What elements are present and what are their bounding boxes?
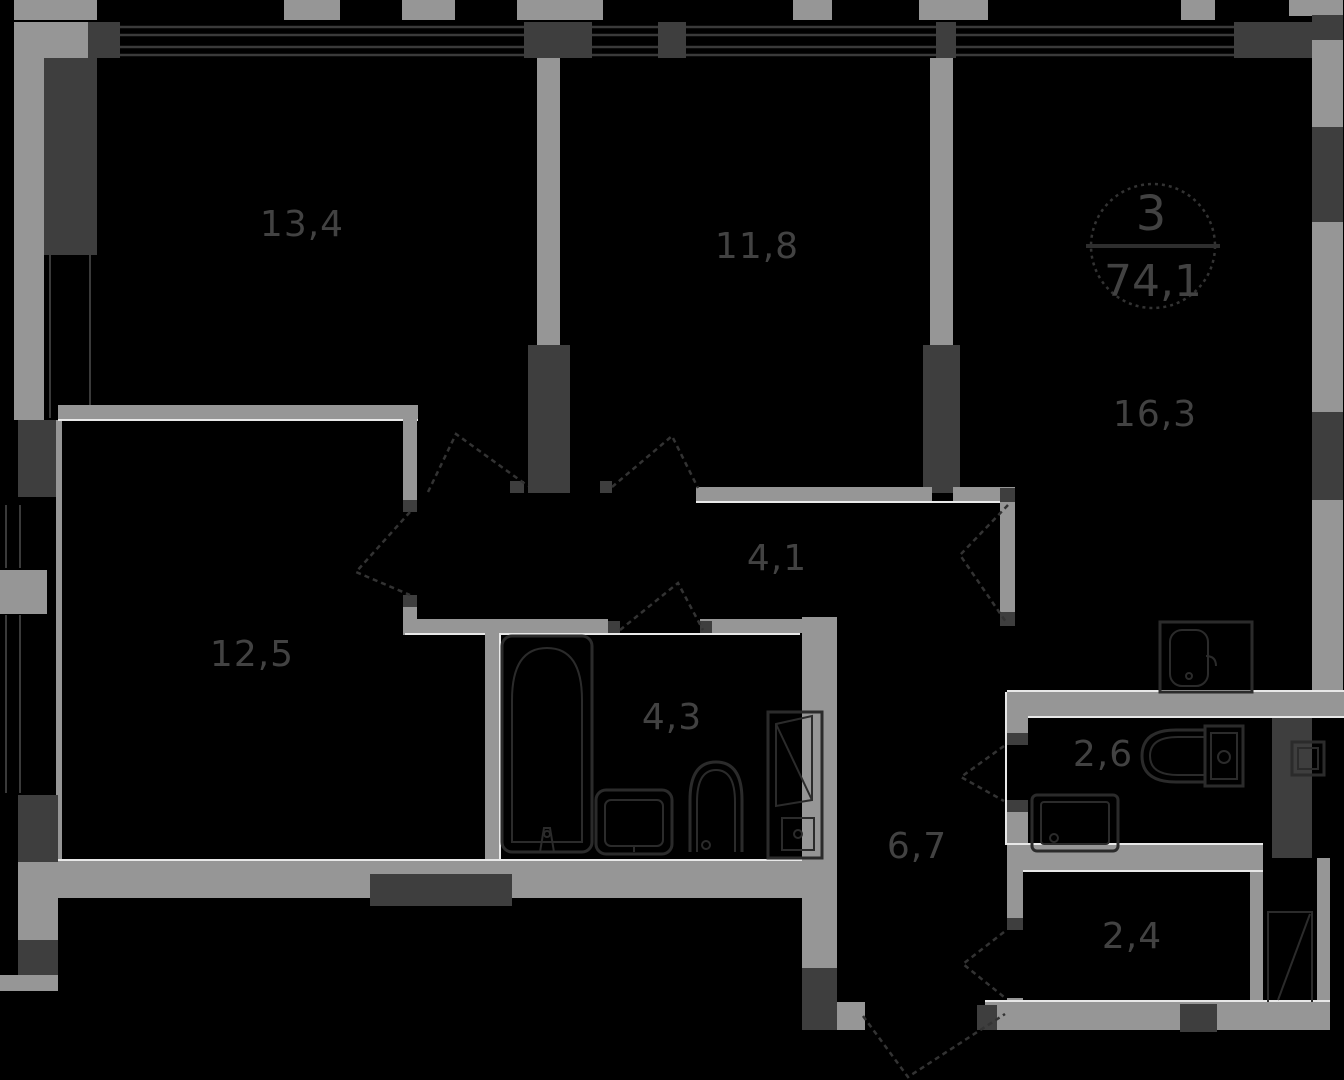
door-bedroom-top-middle [612, 436, 698, 488]
entry-door-icon [1268, 912, 1312, 1002]
toilet-icon [690, 762, 742, 852]
exterior-wall-left [0, 22, 97, 991]
wc-toilet-icon [1142, 726, 1243, 786]
door-bathroom [620, 583, 703, 630]
label-kitchen-living: 16,3 [1113, 394, 1197, 435]
door-wc [961, 746, 1004, 801]
label-bedroom-top-middle: 11,8 [715, 226, 799, 267]
label-bathroom: 4,3 [642, 697, 702, 738]
unit-badge: 3 74,1 [1086, 184, 1220, 308]
floor-plan-canvas: 13,4 11,8 16,3 4,1 12,5 4,3 2,6 6,7 2,4 … [0, 0, 1344, 1080]
exterior-wall-right [1250, 15, 1343, 1003]
label-hallway: 4,1 [747, 538, 807, 579]
floor-plan: 13,4 11,8 16,3 4,1 12,5 4,3 2,6 6,7 2,4 … [0, 0, 1344, 1080]
label-entry-hall: 2,4 [1102, 916, 1162, 957]
door-bedroom-left [356, 512, 410, 595]
label-wc: 2,6 [1073, 734, 1133, 775]
washing-machine-icon [1032, 795, 1118, 851]
label-corridor: 6,7 [887, 826, 947, 867]
label-bedroom-left: 12,5 [210, 634, 294, 675]
door-entry-hall [963, 932, 1004, 997]
door-swings [356, 434, 1008, 1077]
fixtures [502, 622, 1324, 1002]
bathtub-icon [502, 636, 592, 852]
bathroom-sink-icon [596, 790, 672, 854]
kitchen-sink-icon [1160, 622, 1252, 692]
label-bedroom-top-left: 13,4 [260, 204, 344, 245]
facade-top [14, 0, 1343, 58]
unit-total-area: 74,1 [1104, 256, 1202, 307]
unit-number: 3 [1136, 186, 1167, 242]
